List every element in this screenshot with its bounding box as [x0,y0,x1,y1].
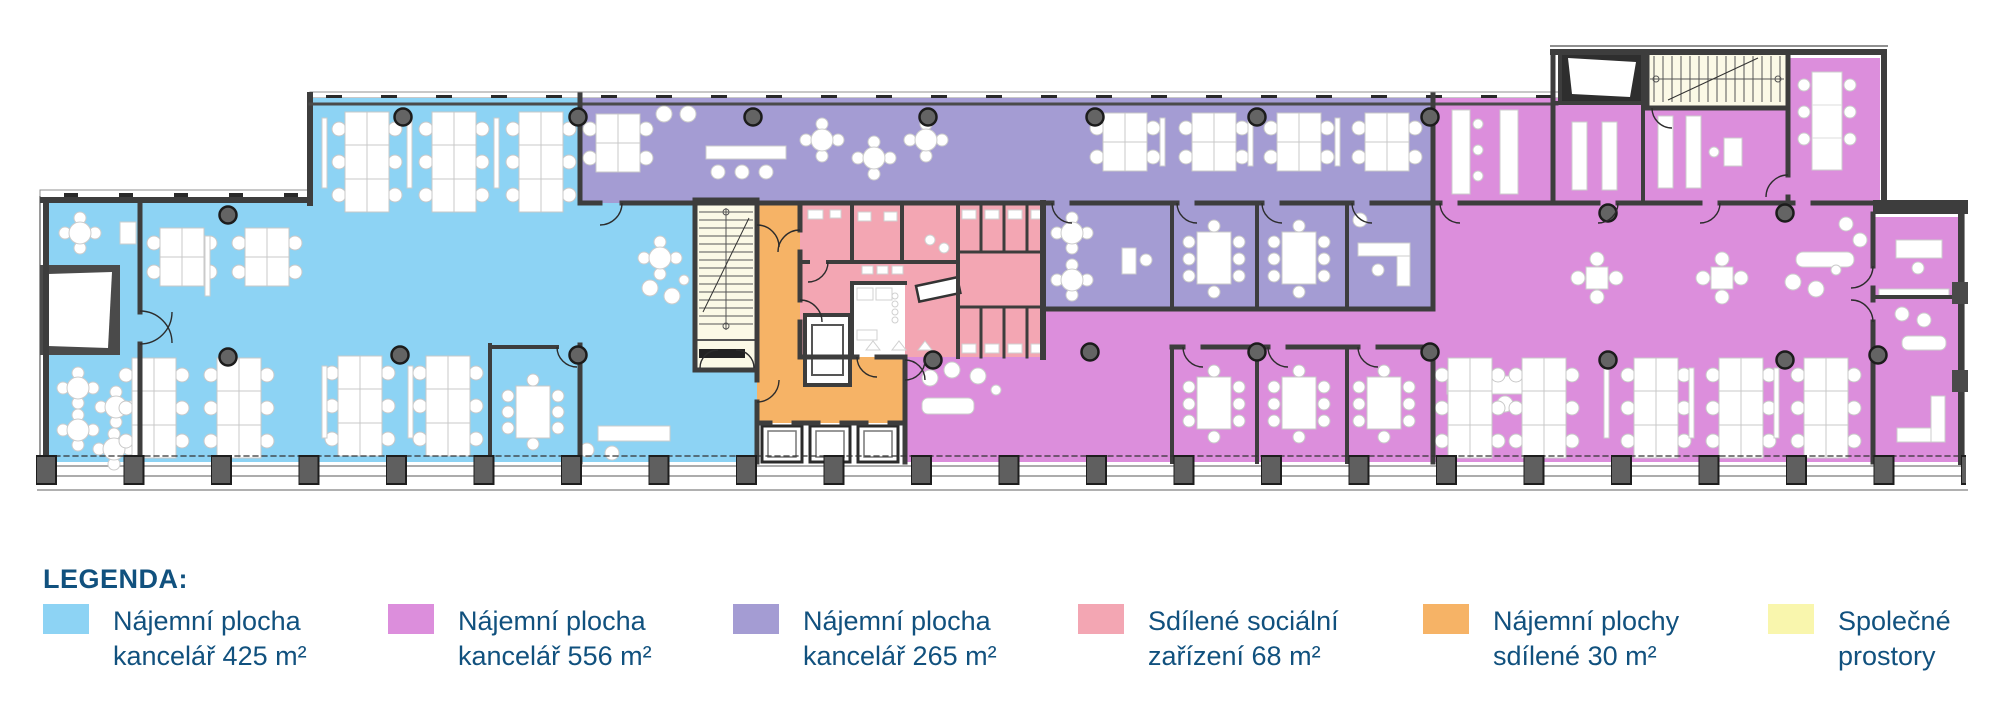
legend-item-office-556: Nájemní plocha kancelář 556 m² [388,604,652,674]
legend-item-office-265: Nájemní plocha kancelář 265 m² [733,604,997,674]
bottom-facade-pilasters [36,454,1966,488]
legend-label-line1: Nájemní plocha [803,604,997,639]
legend-swatch-common [1768,604,1814,634]
legend-swatch-sanitary-68 [1078,604,1124,634]
legend: LEGENDA: Nájemní plocha kancelář 425 m² … [0,556,2000,706]
legend-label-line2: prostory [1838,639,1951,674]
legend-swatch-office-425 [43,604,89,634]
legend-title: LEGENDA: [43,564,188,595]
elevator-shaft-door [1568,58,1636,97]
legend-label-line1: Společné [1838,604,1951,639]
legend-swatch-shared-30 [1423,604,1469,634]
legend-swatch-office-556 [388,604,434,634]
floor-plan-svg [0,0,2000,540]
legend-item-shared-30: Nájemní plochy sdílené 30 m² [1423,604,1679,674]
legend-swatch-office-265 [733,604,779,634]
legend-label-line1: Nájemní plocha [458,604,652,639]
legend-label-line1: Sdílené sociální [1148,604,1339,639]
legend-label-line2: kancelář 556 m² [458,639,652,674]
legend-item-office-425: Nájemní plocha kancelář 425 m² [43,604,307,674]
legend-label-line2: zařízení 68 m² [1148,639,1339,674]
legend-item-sanitary-68: Sdílené sociální zařízení 68 m² [1078,604,1339,674]
page: { "legend": { "title": "LEGENDA:", "text… [0,0,2000,713]
legend-label-line1: Nájemní plocha [113,604,307,639]
legend-label-line2: kancelář 425 m² [113,639,307,674]
legend-label-line2: kancelář 265 m² [803,639,997,674]
legend-label-line1: Nájemní plochy [1493,604,1679,639]
legend-item-common: Společné prostory [1768,604,1951,674]
legend-label-line2: sdílené 30 m² [1493,639,1679,674]
floor-plan [0,0,2000,540]
